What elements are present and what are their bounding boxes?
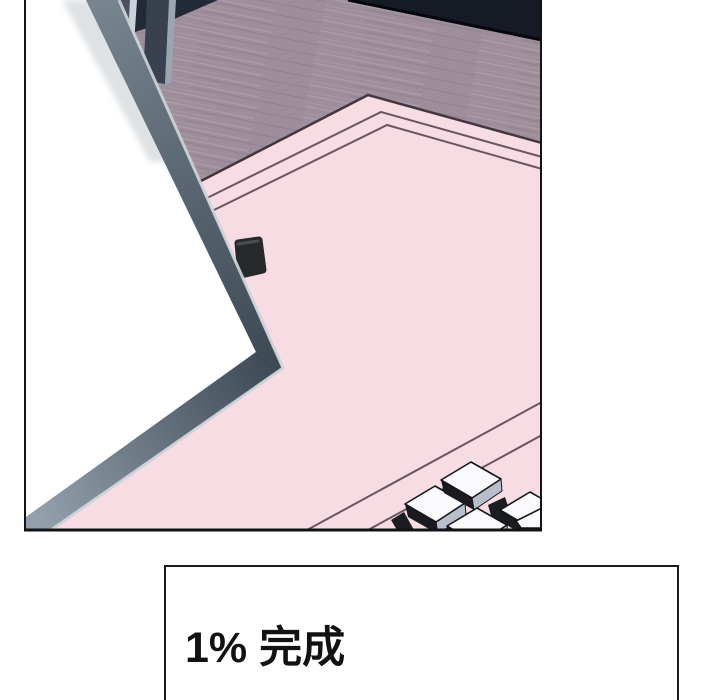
- loading-progress-text: 1% 完成: [185, 627, 345, 670]
- fallen-phone: [238, 240, 263, 275]
- webtoon-viewer: 1% 完成: [0, 0, 720, 700]
- loading-placeholder: 1% 完成: [164, 565, 679, 700]
